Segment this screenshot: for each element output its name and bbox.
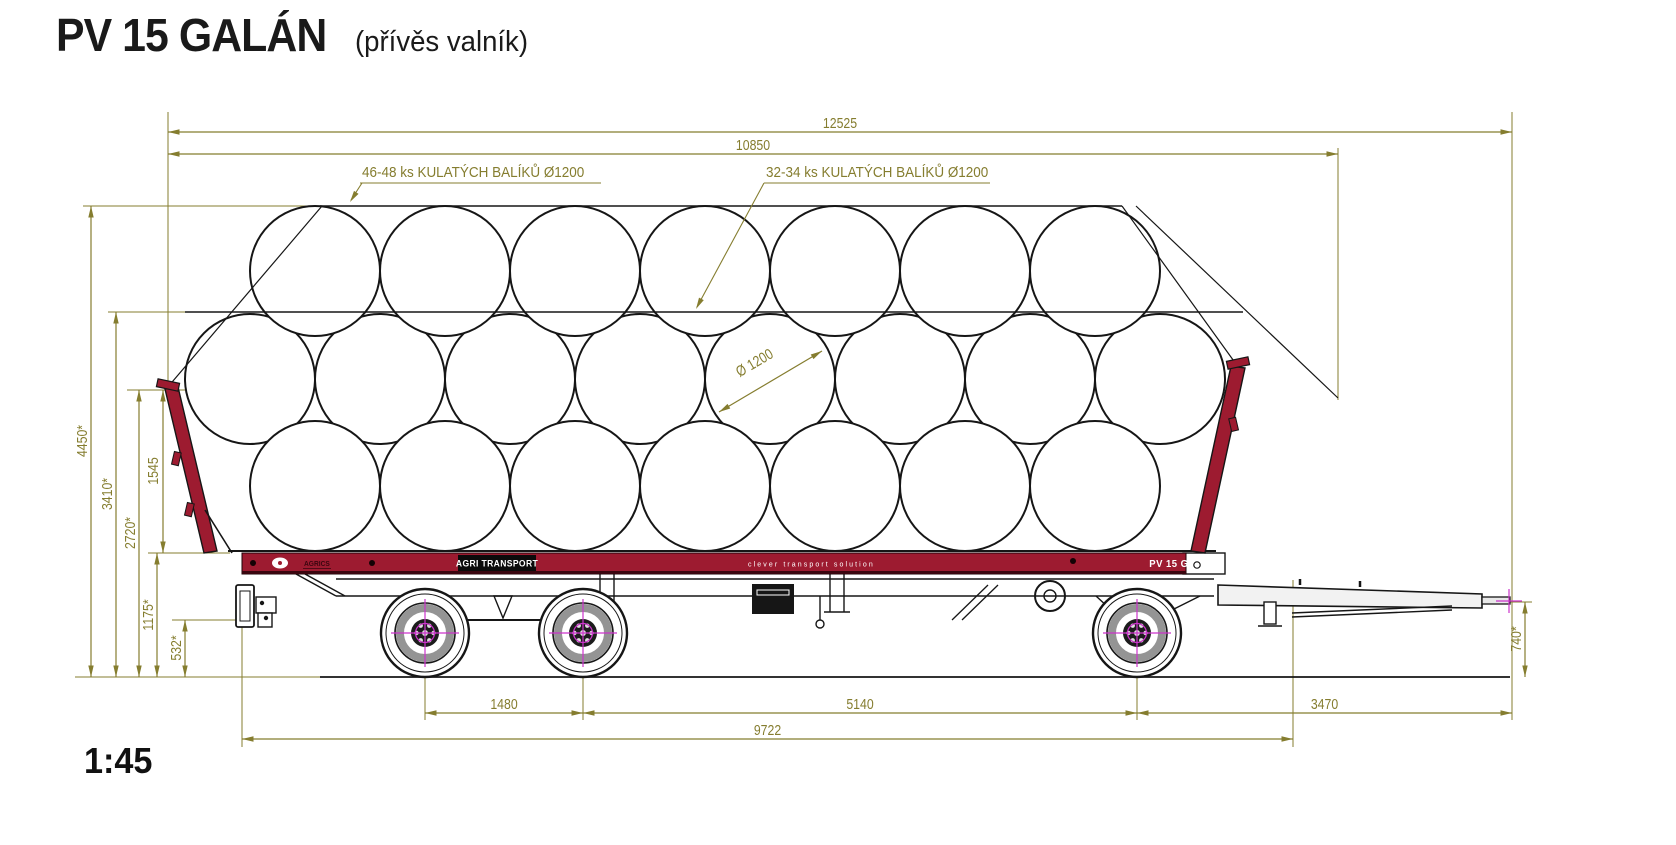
platform-frame (242, 553, 1186, 574)
dimension-label-overall_length: 12525 (823, 115, 858, 131)
dimension-label-chassis_length: 9722 (754, 722, 781, 738)
dimension-label-drawbar_eye_height: 740* (1508, 626, 1524, 652)
dim-arrow (1282, 736, 1294, 741)
bale-circle (250, 206, 380, 336)
bumper-bracket (258, 613, 272, 627)
bale-circle (770, 206, 900, 336)
model-title: PV 15 GALÁN (56, 8, 326, 62)
model-subtitle: (přívěs valník) (355, 26, 528, 59)
dim-arrow (113, 312, 118, 324)
dim-arrow (154, 553, 159, 565)
brace (952, 585, 988, 620)
rear-diagonal (296, 574, 336, 596)
bale-circle (900, 206, 1030, 336)
dim-arrow (1137, 710, 1149, 715)
jockey-leg (1264, 602, 1276, 624)
dim-arrow (1501, 129, 1513, 134)
drawing-sheet: PV 15 GALÁN (přívěs valník) AGRICSAGRI T… (0, 0, 1676, 845)
dim-arrow (168, 151, 180, 156)
dimension-label-rear_clearance: 532* (168, 635, 184, 661)
dimension-label-axle_distance: 5140 (846, 696, 874, 712)
model-plate-text: PV 15 GALÁN (1149, 559, 1216, 570)
dim-arrow (1522, 666, 1527, 678)
dimension-label-overall_height: 4450* (74, 424, 90, 457)
dim-arrow (168, 129, 180, 134)
dim-arrow (160, 542, 165, 554)
dimension-label-bed_length: 10850 (736, 137, 771, 153)
dimension-label-wall_height: 1545 (145, 457, 161, 485)
bale-circle (1030, 206, 1160, 336)
slogan-text: clever transport solution (748, 562, 875, 569)
dim-arrow (136, 390, 141, 402)
bale-circle (1030, 421, 1160, 551)
valve (816, 620, 824, 628)
platform-frame-shadow (242, 571, 1186, 574)
bale-circle (770, 421, 900, 551)
dim-arrow (182, 620, 187, 632)
wall-pivot-bolt (1194, 562, 1200, 568)
bale-circle (640, 206, 770, 336)
bale-circle (380, 421, 510, 551)
bolt (264, 616, 268, 620)
bale-circle (510, 421, 640, 551)
dim-arrow (88, 666, 93, 678)
dim-arrow (113, 666, 118, 678)
brace (962, 585, 998, 620)
trailer-technical-drawing: AGRICSAGRI TRANSPORTclever transport sol… (0, 0, 1676, 845)
rear-diagonal (305, 574, 345, 596)
drawbar-cylinder (1292, 610, 1452, 617)
dim-arrow (583, 710, 595, 715)
dimension-label-platform_height: 1175* (140, 599, 156, 631)
bale-circle (900, 421, 1030, 551)
bolt (260, 601, 264, 605)
dim-arrow (242, 736, 254, 741)
bumper-bracket (256, 597, 276, 613)
dim-arrow (136, 666, 141, 678)
rear-wall-cap (156, 379, 179, 391)
dim-arrow (88, 206, 93, 218)
oval-logo-mark (278, 561, 282, 565)
dim-arrow (154, 666, 159, 678)
dimension-label-side_height: 2720* (122, 516, 138, 549)
dim-arrow (348, 191, 359, 204)
frame-rivet (1070, 558, 1076, 564)
mid-load-annotation: 32-34 ks KULATÝCH BALÍKŮ Ø1200 (766, 162, 988, 181)
dimension-label-drawbar_length: 3470 (1311, 696, 1339, 712)
scale-label: 1:45 (84, 740, 152, 782)
dimension-label-two_row_height: 3410* (99, 477, 115, 510)
front-wall-cap (1226, 357, 1249, 369)
drawbar-beam (1218, 585, 1482, 608)
agrics-logo-text: AGRICS (304, 561, 330, 568)
dim-arrow (425, 710, 437, 715)
dim-arrow (572, 710, 584, 715)
frame-rivet (369, 560, 375, 566)
dim-arrow (160, 390, 165, 402)
toolbox (752, 584, 794, 614)
bale-circle (250, 421, 380, 551)
agri-transport-text: AGRI TRANSPORT (456, 558, 538, 568)
bale-circle (640, 421, 770, 551)
dim-arrow (1522, 602, 1527, 614)
dimension-label-tandem_axle_spacing: 1480 (490, 696, 518, 712)
bale-circle (380, 206, 510, 336)
top-load-annotation: 46-48 ks KULATÝCH BALÍKŮ Ø1200 (362, 162, 584, 181)
frame-rivet (250, 560, 256, 566)
page-title: PV 15 GALÁN (přívěs valník) (56, 8, 537, 62)
rear-wall-hinge (185, 502, 195, 516)
dim-arrow (1501, 710, 1513, 715)
dim-arrow (1327, 151, 1339, 156)
rear-wall-hinge (172, 451, 182, 465)
dim-arrow (182, 666, 187, 678)
dim-arrow (1126, 710, 1138, 715)
bale-circle (510, 206, 640, 336)
equalizer-pivot (494, 596, 512, 618)
